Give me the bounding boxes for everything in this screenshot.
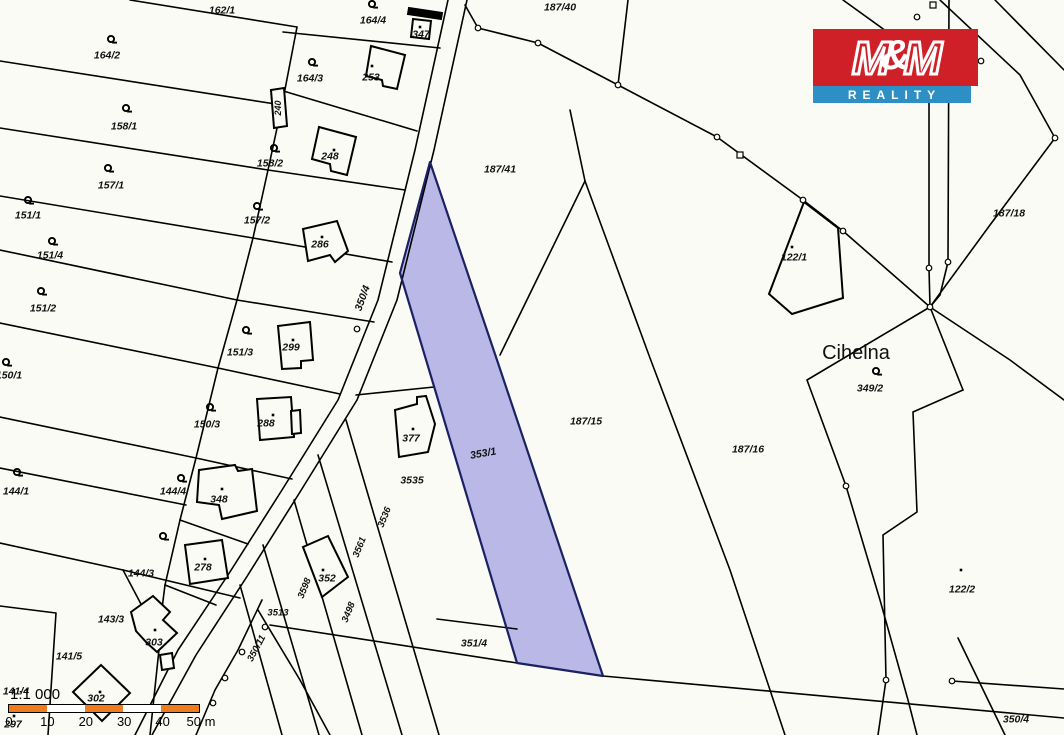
parcel-boundary-line xyxy=(570,110,585,181)
building-center-dot xyxy=(221,488,224,491)
grassland-symbol-circle xyxy=(254,203,260,209)
parcel-boundary-line xyxy=(500,181,585,355)
parcel-label-144-3: 144/3 xyxy=(128,568,154,580)
building-outline xyxy=(395,396,435,457)
parcel-label-286: 286 xyxy=(310,239,329,251)
parcel-boundary-line xyxy=(318,455,402,735)
map-scalebar: 1:1 000 01020304050 m xyxy=(8,686,238,730)
building-outline xyxy=(160,653,174,670)
grassland-symbol-circle xyxy=(123,105,129,111)
scalebar-tick-labels: 01020304050 m xyxy=(8,714,238,730)
parcel-boundary-line xyxy=(958,638,1005,735)
grassland-symbol xyxy=(243,327,252,334)
logo-ampersand: & xyxy=(880,34,910,76)
parcel-label-164-2: 164/2 xyxy=(94,50,120,62)
parcel-label-157-2: 157/2 xyxy=(244,215,270,227)
map-canvas[interactable]: 162/1164/2164/4347253164/3158/1240158/22… xyxy=(0,0,1064,735)
parcel-boundary-line xyxy=(346,420,439,735)
parcel-label-122-1: 122/1 xyxy=(781,252,807,264)
parcel-label-303: 303 xyxy=(145,637,163,649)
survey-point-circle xyxy=(949,678,955,684)
parcel-label-141-5: 141/5 xyxy=(56,651,82,663)
parcel-boundary-line xyxy=(807,307,930,735)
parcel-label-144-4: 144/4 xyxy=(160,486,186,498)
scalebar-tick: 40 xyxy=(155,714,169,729)
parcel-label-144-1: 144/1 xyxy=(3,486,29,498)
survey-point-circle xyxy=(714,134,720,140)
parcel-label-158-1: 158/1 xyxy=(111,121,137,133)
parcel-label-253: 253 xyxy=(361,72,380,84)
parcel-label-158-2: 158/2 xyxy=(257,158,283,170)
parcel-boundary-line xyxy=(618,0,628,85)
building-center-dot xyxy=(154,629,157,632)
scalebar-bar xyxy=(8,704,200,713)
parcel-boundary-line xyxy=(152,0,467,735)
mm-logo-mark: M & M xyxy=(813,29,978,86)
parcel-label-150-3: 150/3 xyxy=(194,419,220,431)
survey-point-circle xyxy=(535,40,541,46)
parcel-boundary-line xyxy=(165,585,216,605)
parcel-label-151-4: 151/4 xyxy=(37,250,63,262)
survey-point-circle xyxy=(927,304,933,310)
building-center-dot xyxy=(322,569,325,572)
grassland-symbol-circle xyxy=(271,145,277,151)
survey-point-circle xyxy=(843,483,849,489)
parcel-label-347: 347 xyxy=(412,29,431,41)
building-outline xyxy=(291,410,301,434)
grassland-symbol xyxy=(123,105,132,112)
parcel-boundary-line xyxy=(0,543,123,570)
survey-point-circle xyxy=(840,228,846,234)
parcel-label-187-18: 187/18 xyxy=(993,208,1025,220)
building-outline xyxy=(197,465,257,519)
parcel-label-151-2: 151/2 xyxy=(30,303,56,315)
building-center-dot xyxy=(371,65,374,68)
survey-point-circle xyxy=(222,675,228,681)
parcel-label-248: 248 xyxy=(320,151,339,163)
grassland-symbol-circle xyxy=(49,238,55,244)
scalebar-tick: 20 xyxy=(79,714,93,729)
survey-point-circle xyxy=(978,58,984,64)
parcel-label-122-2: 122/2 xyxy=(949,584,975,596)
building-outline xyxy=(408,8,442,19)
scalebar-segment xyxy=(9,705,47,712)
scalebar-segment xyxy=(47,705,85,712)
grassland-symbol xyxy=(369,1,378,8)
parcel-label-187-41: 187/41 xyxy=(484,164,516,176)
parcel-label-288: 288 xyxy=(256,418,275,430)
grassland-symbol xyxy=(3,359,12,366)
grassland-symbol-circle xyxy=(38,288,44,294)
parcel-label-164-3: 164/3 xyxy=(297,73,323,85)
grassland-symbol xyxy=(309,59,318,66)
parcel-label-352: 352 xyxy=(318,573,336,585)
parcel-label-151-1: 151/1 xyxy=(15,210,41,222)
parcel-label-162-1: 162/1 xyxy=(209,5,235,17)
grassland-symbol-circle xyxy=(105,165,111,171)
survey-point-circle xyxy=(1052,135,1058,141)
parcel-label-143-3: 143/3 xyxy=(98,614,124,626)
scalebar-tick: 0 xyxy=(5,714,12,729)
survey-point-circle xyxy=(262,624,268,630)
parcel-label-240: 240 xyxy=(273,100,283,116)
parcel-label-cihelna: Cihelna xyxy=(822,342,891,364)
parcel-label-278: 278 xyxy=(193,562,212,574)
parcel-label-349-2: 349/2 xyxy=(857,383,883,395)
logo-wordmark: REALITY xyxy=(813,86,971,103)
survey-point-circle xyxy=(800,197,806,203)
parcel-boundary-line xyxy=(995,0,1064,70)
survey-point-circle xyxy=(926,265,932,271)
parcel-boundary-line xyxy=(280,90,417,131)
parcel-label-3513: 3513 xyxy=(267,607,289,618)
cadastral-map-page: 162/1164/2164/4347253164/3158/1240158/22… xyxy=(0,0,1064,735)
parcel-boundary-line xyxy=(270,625,1064,718)
grassland-symbol xyxy=(105,165,114,172)
parcel-boundary-line xyxy=(263,545,319,735)
scalebar-segment xyxy=(85,705,123,712)
scale-ratio-label: 1:1 000 xyxy=(10,686,238,703)
scalebar-segment xyxy=(161,705,199,712)
grassland-symbol-circle xyxy=(309,59,315,65)
grassland-symbol xyxy=(108,36,117,43)
mm-reality-logo: M & M REALITY xyxy=(813,29,978,103)
parcel-boundary-line xyxy=(930,307,963,390)
survey-point-square xyxy=(737,152,743,158)
grassland-symbol xyxy=(49,238,58,245)
parcel-label-150-1: 150/1 xyxy=(0,370,22,382)
building-center-dot xyxy=(272,414,275,417)
parcel-label-3561: 3561 xyxy=(351,535,369,559)
parcel-label-157-1: 157/1 xyxy=(98,180,124,192)
parcel-label-3536: 3536 xyxy=(376,505,394,529)
scalebar-tick: 10 xyxy=(40,714,54,729)
survey-point-circle xyxy=(475,25,481,31)
grassland-symbol-circle xyxy=(178,475,184,481)
survey-point-square xyxy=(930,2,936,8)
grassland-symbol xyxy=(178,475,187,482)
survey-point-circle xyxy=(239,649,245,655)
parcel-boundary-line xyxy=(0,250,237,300)
building-center-dot xyxy=(791,246,794,249)
parcel-label-3535: 3535 xyxy=(400,475,424,487)
parcel-label-350-4: 350/4 xyxy=(353,284,373,313)
parcel-label-187-40: 187/40 xyxy=(544,2,576,14)
grassland-symbol xyxy=(38,288,47,295)
scalebar-tick: 50 m xyxy=(187,714,216,729)
grassland-symbol-circle xyxy=(3,359,9,365)
building-center-dot xyxy=(412,428,415,431)
survey-point-circle xyxy=(615,82,621,88)
grassland-symbol xyxy=(254,203,263,210)
survey-point-circle xyxy=(914,14,920,20)
parcel-boundary-line xyxy=(0,323,218,368)
parcel-label-187-16: 187/16 xyxy=(732,444,764,456)
parcel-label-299: 299 xyxy=(281,342,300,354)
parcel-label-164-4: 164/4 xyxy=(360,15,386,27)
parcel-boundary-line xyxy=(0,61,282,105)
parcel-label-187-15: 187/15 xyxy=(570,416,602,428)
building-center-dot xyxy=(204,558,207,561)
grassland-symbol xyxy=(160,533,169,540)
grassland-symbol-circle xyxy=(369,1,375,7)
parcel-boundary-line xyxy=(952,681,1064,689)
parcel-boundary-line xyxy=(218,368,340,394)
survey-point-circle xyxy=(883,677,889,683)
scalebar-segment xyxy=(123,705,161,712)
parcel-label-3598: 3598 xyxy=(296,576,314,600)
parcel-label-151-3: 151/3 xyxy=(227,347,253,359)
building-center-dot xyxy=(960,569,963,572)
parcel-label-350-11: 350/11 xyxy=(245,633,268,663)
grassland-symbol-circle xyxy=(873,368,879,374)
parcel-label-3498: 3498 xyxy=(340,600,358,624)
parcel-boundary-line xyxy=(930,307,1064,400)
parcel-boundary-line xyxy=(0,128,268,170)
grassland-symbol-circle xyxy=(108,36,114,42)
grassland-symbol-circle xyxy=(243,327,249,333)
grassland-symbol-circle xyxy=(207,404,213,410)
parcel-boundary-line xyxy=(356,387,434,395)
scalebar-tick: 30 xyxy=(117,714,131,729)
parcel-boundary-line xyxy=(585,181,785,735)
parcel-label-351-4: 351/4 xyxy=(461,638,487,650)
parcel-label-348: 348 xyxy=(210,494,228,506)
grassland-symbol-circle xyxy=(160,533,166,539)
parcel-boundary-line xyxy=(0,417,196,458)
parcel-label-350-4: 350/4 xyxy=(1003,714,1029,726)
grassland-symbol xyxy=(873,368,882,375)
survey-point-circle xyxy=(945,259,951,265)
parcel-label-377: 377 xyxy=(402,433,421,445)
survey-point-circle xyxy=(354,326,360,332)
